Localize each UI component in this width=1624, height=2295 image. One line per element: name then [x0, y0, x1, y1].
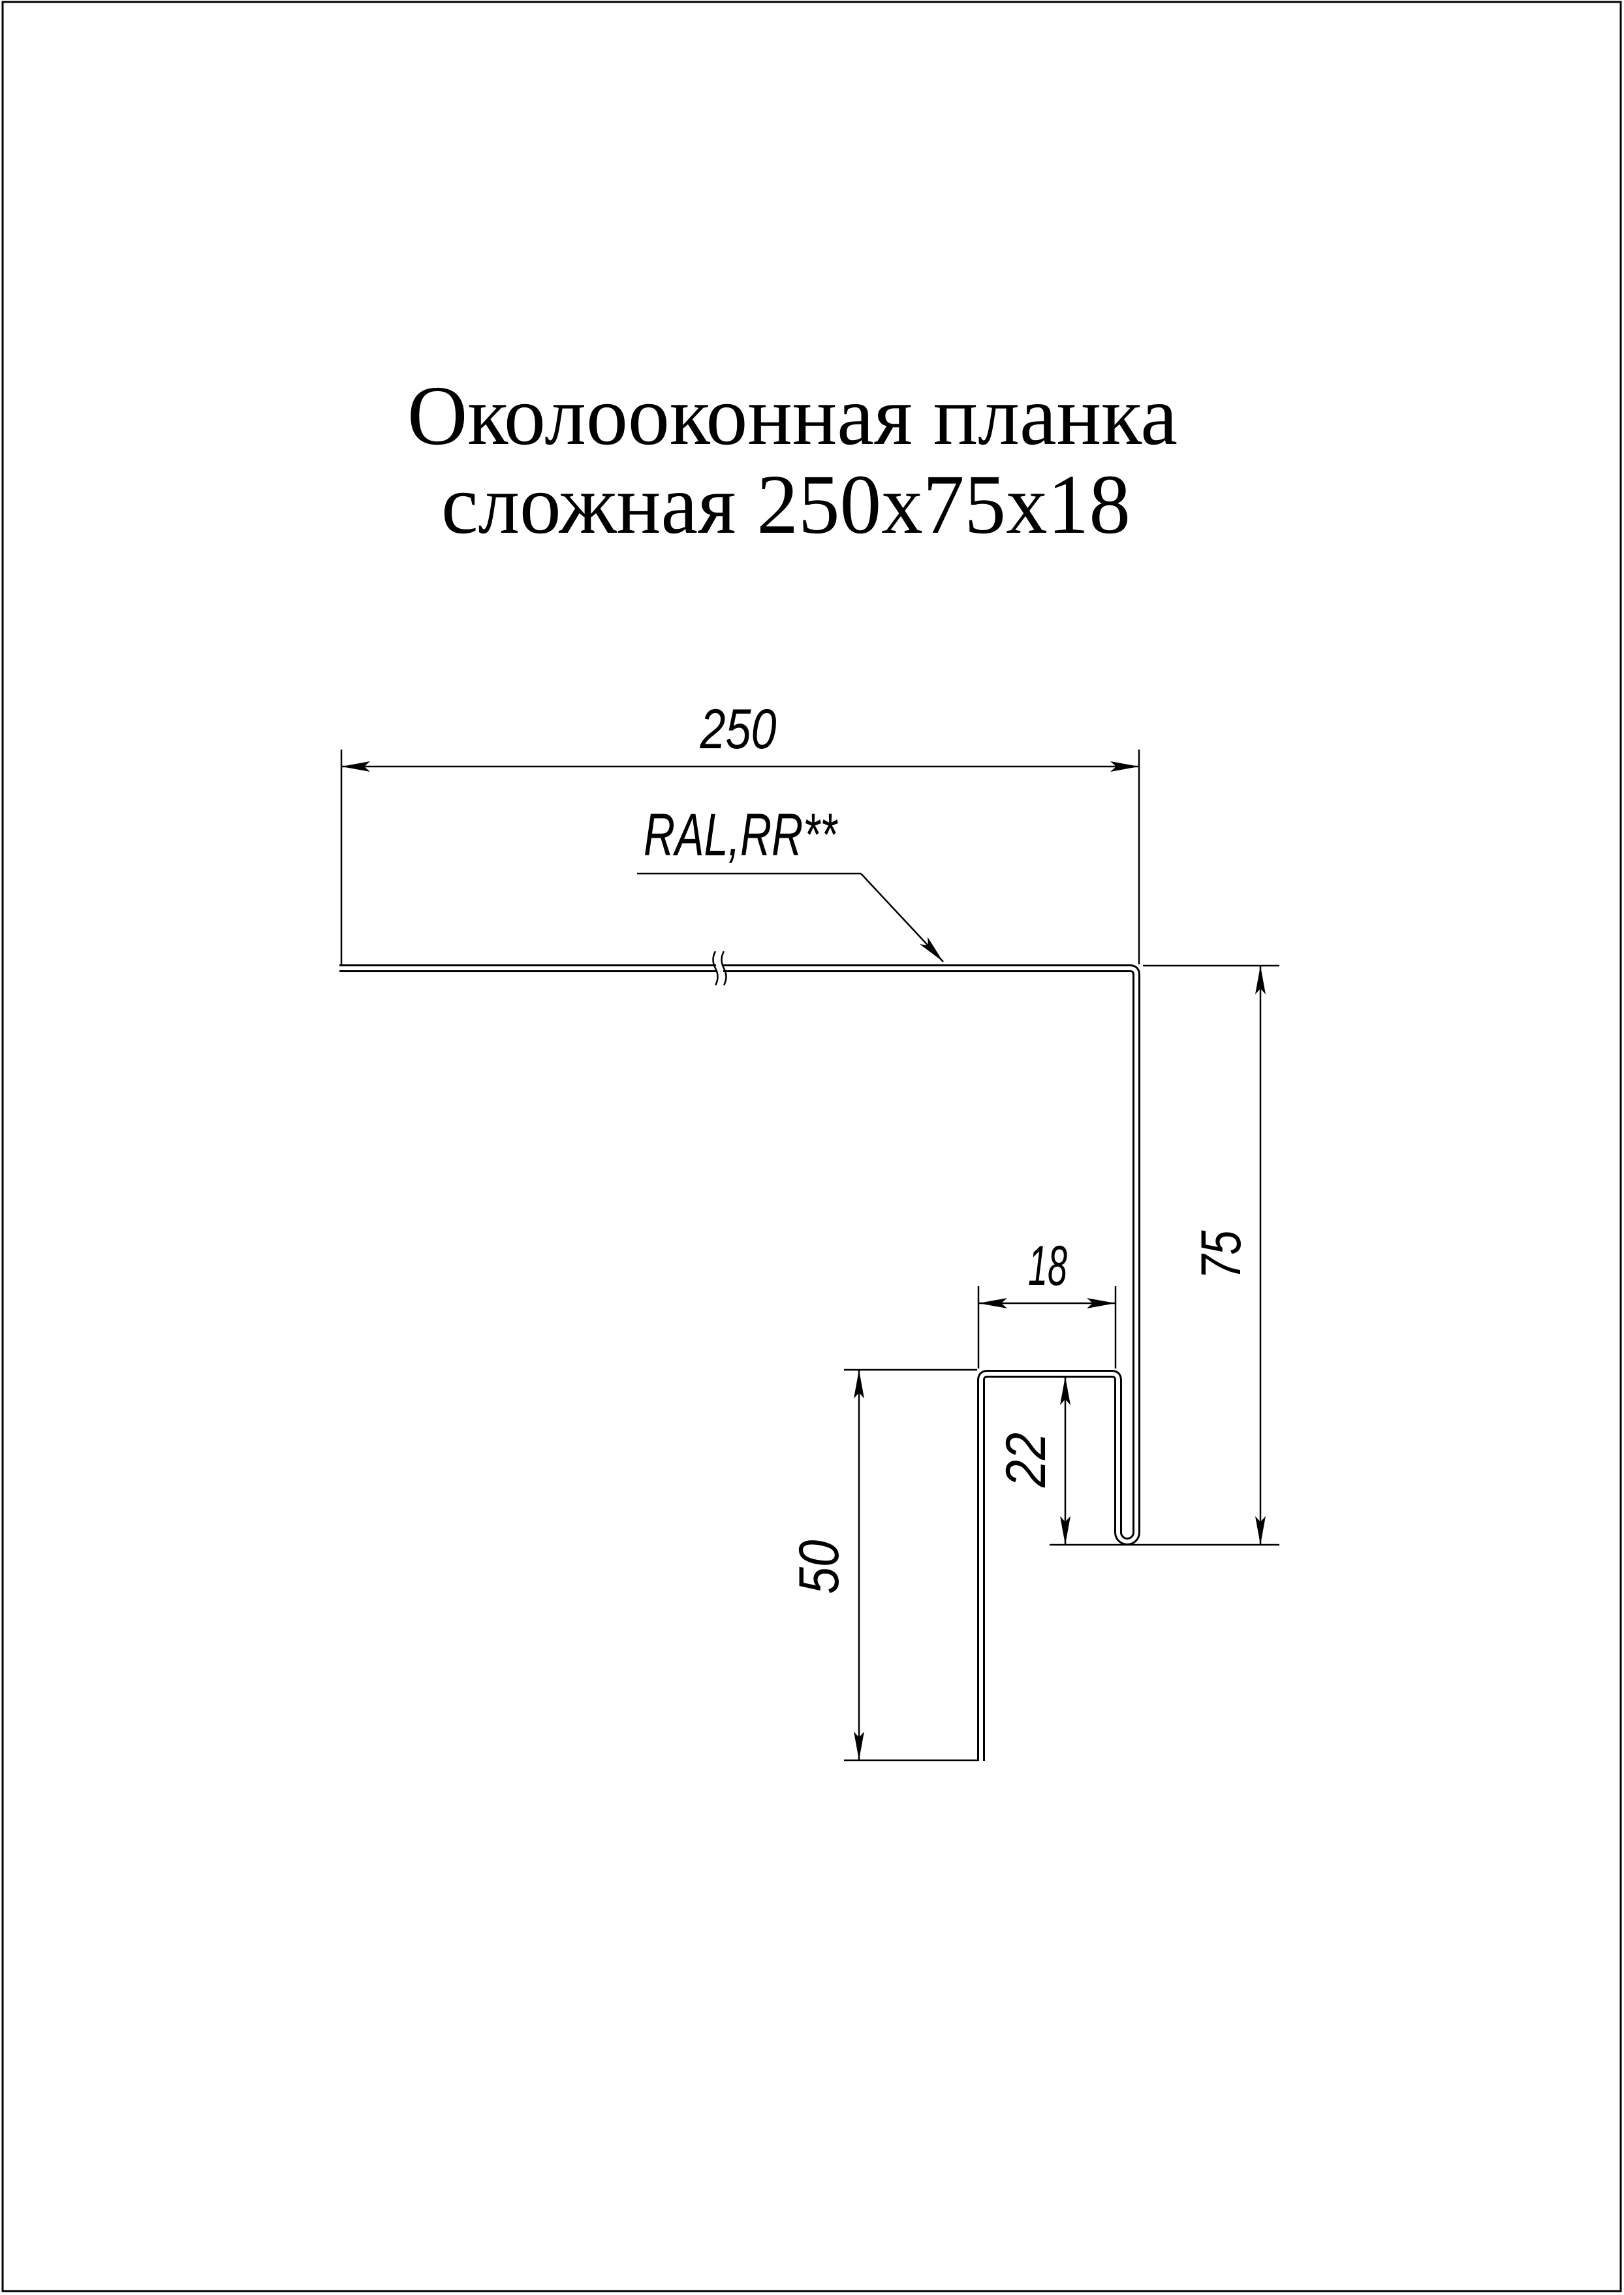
- coating-annotation: RAL,RR**: [637, 802, 943, 962]
- coating-label: RAL,RR**: [644, 802, 838, 868]
- profile-outline: [339, 968, 1136, 1761]
- break-symbol: [713, 951, 726, 985]
- profile-metal-core: [339, 968, 1136, 1761]
- dim-label-250: 250: [700, 698, 777, 761]
- dim-label-50: 50: [788, 1540, 851, 1594]
- dimension-arrowheads: [341, 761, 1266, 1760]
- dimension-lines: [341, 767, 1260, 1760]
- page-border: [3, 2, 1621, 2291]
- dim-label-18: 18: [1028, 1235, 1067, 1297]
- drawing-sheet: Околооконная планка сложная 250х75х18: [0, 0, 1624, 2295]
- dim-label-22: 22: [995, 1432, 1057, 1488]
- page-title-line1: Околооконная планка: [407, 369, 1178, 463]
- profile-metal-outer: [339, 968, 1136, 1761]
- dim-label-75: 75: [1190, 1230, 1253, 1280]
- page-title-line2: сложная 250х75х18: [441, 458, 1131, 552]
- drawing-title: Околооконная планка сложная 250х75х18: [407, 369, 1178, 552]
